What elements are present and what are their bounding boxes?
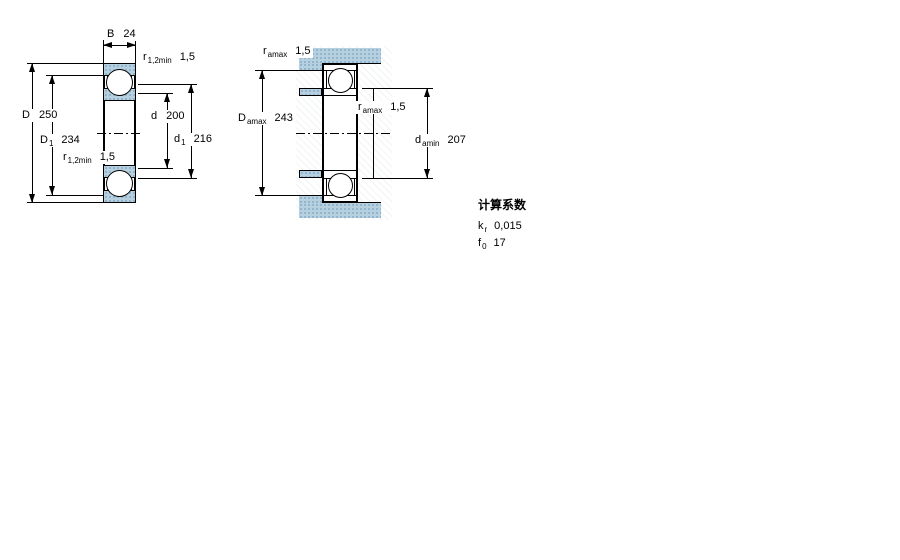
arrowhead [49,75,55,84]
dim-label-r12min-mid: r1,2min1,5 [61,151,117,164]
dim-subscript: amax [363,106,383,115]
raceway-shoulder-line [354,70,355,88]
arrowhead [188,84,194,93]
housing-section-bottom [299,203,381,218]
dim-subscript: amax [247,117,267,126]
ring-section-line [322,170,358,171]
dim-symbol: d [415,134,421,146]
dim-subscript: 1 [181,138,185,147]
factor-symbol: f [478,237,481,249]
raceway-shoulder-line [326,70,327,88]
dimension-line [262,70,263,196]
factor-row-f0: f017 [478,236,506,251]
ball-bottom [106,170,133,197]
dim-subscript: 1,2min [148,56,172,65]
housing-shoulder-top [299,63,322,71]
arrowhead [127,42,136,48]
dim-symbol: D [22,109,30,121]
dim-value: 200 [166,110,184,122]
ball-bottom [328,173,353,198]
arrowhead [259,70,265,79]
arrowhead [259,187,265,196]
centerline [296,133,390,134]
housing-bore-line [358,63,381,64]
arrowhead [424,88,430,97]
dim-symbol: D [238,112,246,124]
housing-bore-line [358,202,381,203]
arrowhead [29,63,35,72]
arrowhead [188,169,194,178]
arrowhead [164,159,170,168]
factor-subscript: r [485,225,488,234]
dim-label-D: D250 [20,109,59,122]
dim-subscript: amax [268,50,288,59]
factor-subscript: 0 [482,242,486,251]
shaft-shoulder-top [299,88,322,96]
dim-symbol: r [263,45,267,57]
bearing-dimension-diagram: B24 r1,2min1,5 D250 D1234 r1,2min1,5 d20… [0,0,900,560]
dim-label-d1: d1216 [172,133,214,146]
extension-line [362,178,433,179]
extension-line [27,202,103,203]
dim-value: 207 [447,134,465,146]
dim-symbol: B [107,28,114,40]
factor-value: 17 [494,237,506,249]
factors-title: 计算系数 [478,196,526,213]
dim-value: 234 [61,134,79,146]
dimension-line [427,88,428,178]
factor-row-kr: kr0,015 [478,219,522,234]
raceway-shoulder-line [326,178,327,196]
ball-top [328,68,353,93]
dim-label-ramax-top: ramax1,5 [261,45,313,58]
dim-value: 250 [39,109,57,121]
dim-subscript: 1 [49,139,53,148]
dim-symbol: r [358,101,362,113]
dim-symbol: r [143,51,147,63]
dim-subscript: 1,2min [68,156,92,165]
arrowhead [424,169,430,178]
dimension-line [191,84,192,178]
factor-value: 0,015 [494,220,522,232]
arrowhead [29,194,35,203]
raceway-shoulder-line [354,178,355,196]
ring-section-line [322,95,358,96]
dim-label-ramax-mid: ramax1,5 [356,101,408,114]
dim-label-D1: D1234 [38,134,82,147]
dim-value: 1,5 [390,101,405,113]
extension-line [138,178,197,179]
housing-shoulder-bottom [299,195,322,203]
ball-top [106,69,133,96]
arrowhead [164,93,170,102]
dim-value: 24 [123,28,135,40]
dim-label-damin: damin207 [413,134,468,147]
factor-symbol: k [478,220,484,232]
dimension-line [32,63,33,203]
dim-symbol: d [151,110,157,122]
shaft-shoulder-bottom [299,170,322,178]
dim-symbol: D [40,134,48,146]
dim-symbol: d [174,133,180,145]
arrowhead [49,186,55,195]
extension-line [27,63,103,64]
dim-value: 243 [275,112,293,124]
dimension-line [167,93,168,168]
dim-label-r12min-top: r1,2min1,5 [141,51,197,64]
dim-value: 216 [194,133,212,145]
dim-label-d: d200 [149,110,186,123]
dim-value: 1,5 [100,151,115,163]
arrowhead [103,42,112,48]
dim-symbol: r [63,151,67,163]
dim-label-B: B24 [105,28,138,41]
dim-value: 1,5 [295,45,310,57]
dim-value: 1,5 [180,51,195,63]
extension-line [138,168,173,169]
dim-subscript: amin [422,139,439,148]
extension-line [46,195,103,196]
dim-label-Damax: Damax243 [236,112,295,125]
